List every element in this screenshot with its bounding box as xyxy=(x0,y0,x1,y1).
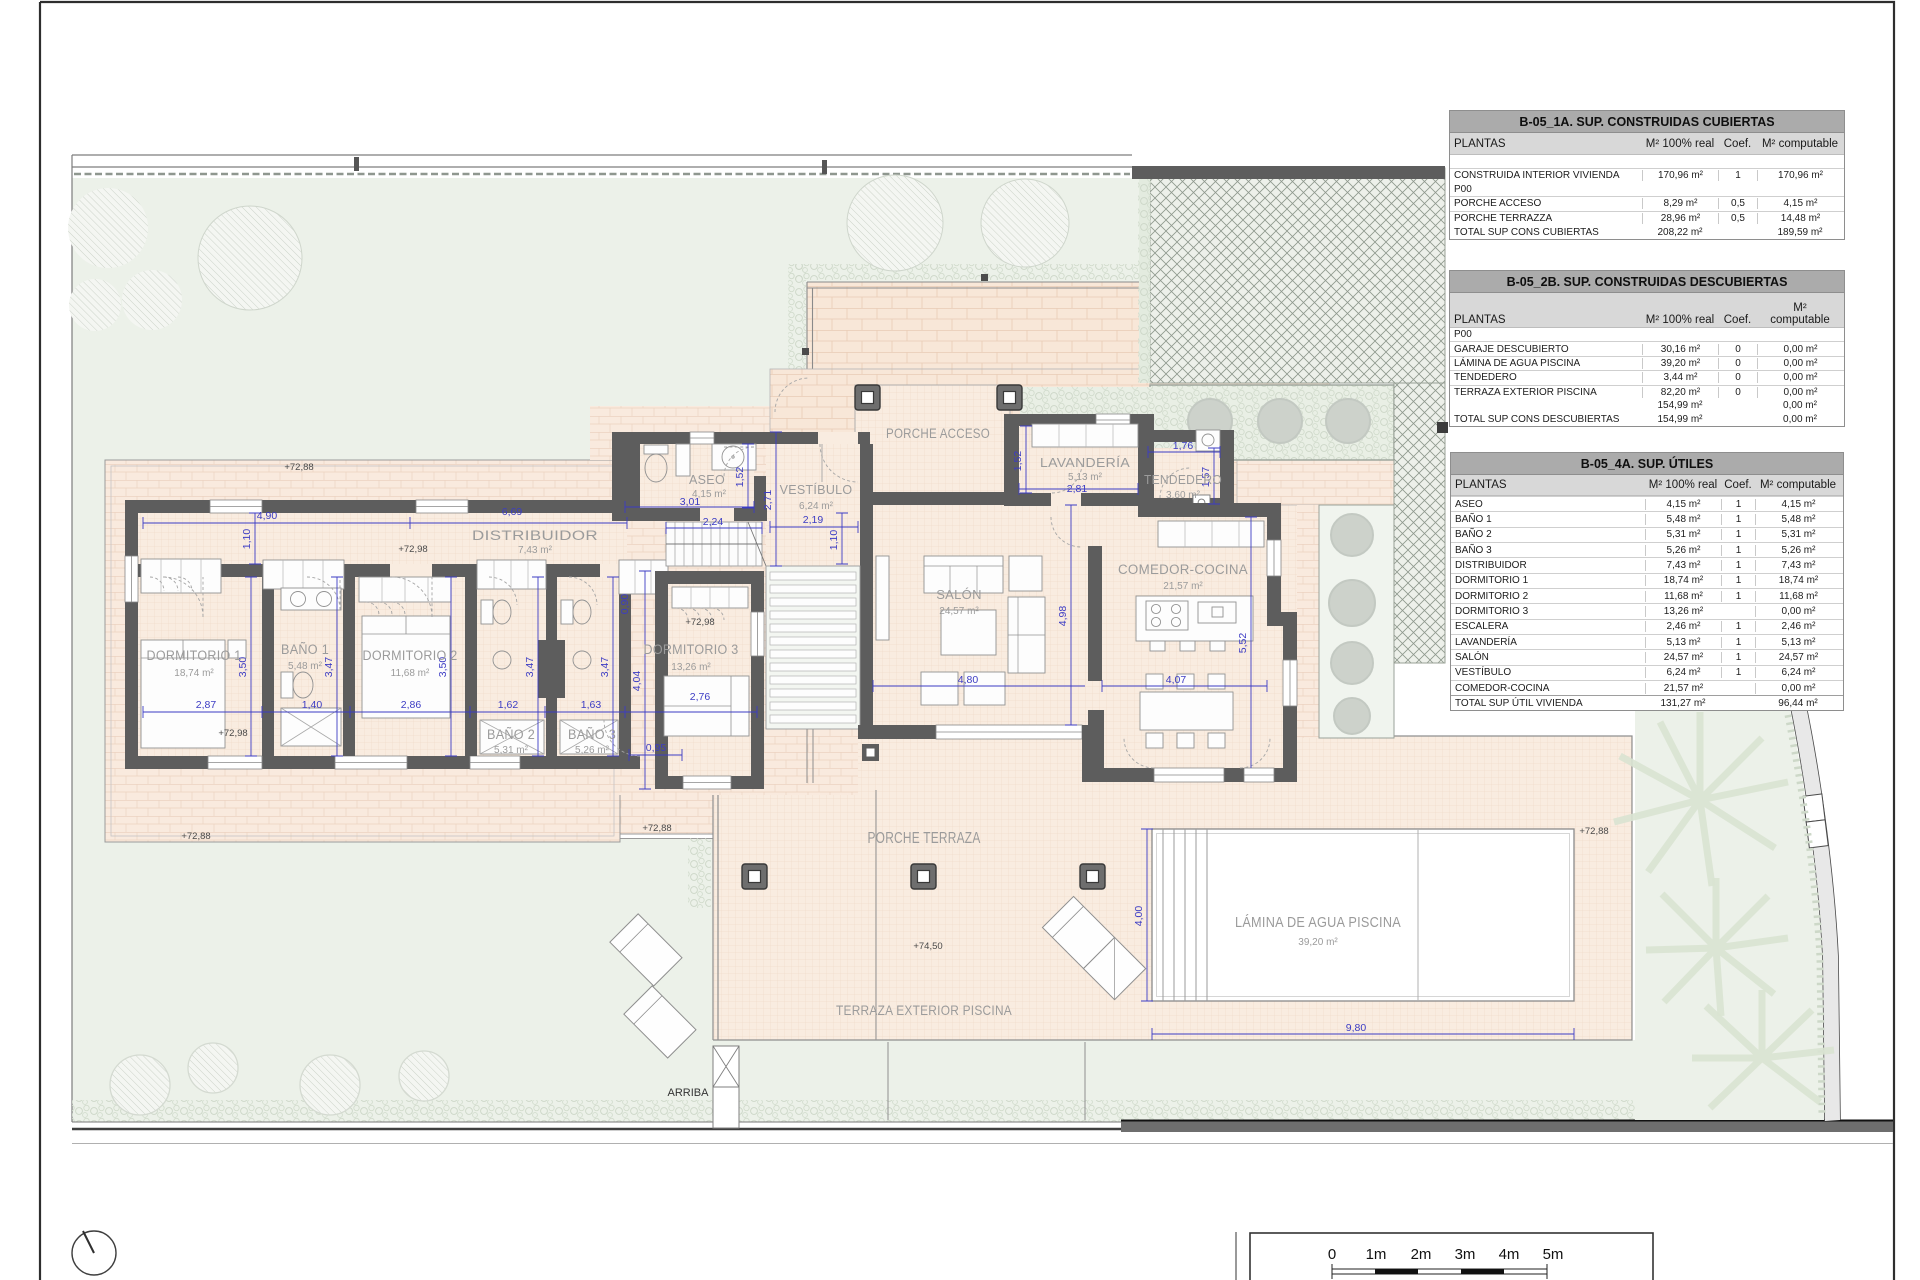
svg-text:6,69: 6,69 xyxy=(502,506,523,518)
svg-text:39,20 m²: 39,20 m² xyxy=(1298,937,1338,948)
svg-text:4m: 4m xyxy=(1499,1246,1520,1263)
svg-text:2,81: 2,81 xyxy=(1067,483,1088,495)
svg-text:BAÑO 1: BAÑO 1 xyxy=(281,642,329,657)
svg-text:6,24 m²: 6,24 m² xyxy=(799,501,834,512)
svg-text:+72,88: +72,88 xyxy=(1579,826,1608,837)
svg-text:LÁMINA DE AGUA PISCINA: LÁMINA DE AGUA PISCINA xyxy=(1235,914,1401,931)
svg-text:2,71: 2,71 xyxy=(762,490,774,511)
svg-text:+72,88: +72,88 xyxy=(642,823,671,834)
svg-text:1,40: 1,40 xyxy=(302,699,323,711)
svg-text:3,60 m²: 3,60 m² xyxy=(1166,490,1201,501)
svg-text:1m: 1m xyxy=(1366,1246,1387,1263)
svg-text:2,19: 2,19 xyxy=(803,514,824,526)
svg-text:4,90: 4,90 xyxy=(257,510,278,522)
svg-text:2,76: 2,76 xyxy=(690,691,711,703)
svg-text:2,86: 2,86 xyxy=(401,699,422,711)
svg-text:18,74 m²: 18,74 m² xyxy=(174,668,214,679)
svg-text:2m: 2m xyxy=(1411,1246,1432,1263)
svg-text:1,62: 1,62 xyxy=(498,699,519,711)
svg-text:+72,88: +72,88 xyxy=(284,462,313,473)
svg-text:TENDEDERO: TENDEDERO xyxy=(1144,473,1222,487)
svg-text:9,80: 9,80 xyxy=(1346,1022,1367,1034)
svg-text:+72,98: +72,98 xyxy=(685,617,714,628)
svg-text:1,10: 1,10 xyxy=(241,529,253,550)
svg-text:COMEDOR-COCINA: COMEDOR-COCINA xyxy=(1118,562,1248,577)
svg-text:5,31 m²: 5,31 m² xyxy=(494,745,529,756)
svg-text:13,26 m²: 13,26 m² xyxy=(671,662,711,673)
svg-text:4,07: 4,07 xyxy=(1166,674,1187,686)
svg-text:7,43 m²: 7,43 m² xyxy=(518,545,553,556)
svg-text:LAVANDERÍA: LAVANDERÍA xyxy=(1040,455,1130,470)
svg-text:DORMITORIO 3: DORMITORIO 3 xyxy=(644,642,739,657)
svg-text:DORMITORIO 2: DORMITORIO 2 xyxy=(363,648,458,663)
svg-text:0: 0 xyxy=(1328,1246,1336,1263)
svg-text:3,47: 3,47 xyxy=(524,657,536,678)
svg-text:ARRIBA: ARRIBA xyxy=(668,1087,710,1099)
svg-text:+72,88: +72,88 xyxy=(181,831,210,842)
svg-text:5,26 m²: 5,26 m² xyxy=(575,745,610,756)
svg-text:+72,98: +72,98 xyxy=(398,544,427,555)
svg-text:4,00: 4,00 xyxy=(1133,906,1145,927)
svg-text:ASEO: ASEO xyxy=(689,473,725,487)
svg-text:4,15 m²: 4,15 m² xyxy=(692,489,727,500)
svg-text:3,47: 3,47 xyxy=(323,657,335,678)
svg-text:11,68 m²: 11,68 m² xyxy=(391,668,430,679)
svg-text:TERRAZA EXTERIOR PISCINA: TERRAZA EXTERIOR PISCINA xyxy=(836,1002,1012,1018)
svg-text:PORCHE ACCESO: PORCHE ACCESO xyxy=(886,425,990,441)
svg-text:5,52: 5,52 xyxy=(1237,633,1249,654)
svg-text:21,57 m²: 21,57 m² xyxy=(1163,581,1203,592)
svg-text:1,52: 1,52 xyxy=(1012,451,1024,472)
svg-text:3m: 3m xyxy=(1455,1246,1476,1263)
svg-text:4,98: 4,98 xyxy=(1057,606,1069,627)
svg-text:DORMITORIO 1: DORMITORIO 1 xyxy=(147,648,242,663)
svg-text:1,10: 1,10 xyxy=(828,530,840,551)
svg-text:BAÑO 2: BAÑO 2 xyxy=(487,727,535,742)
svg-text:1,76: 1,76 xyxy=(1173,440,1194,452)
svg-text:24,57 m²: 24,57 m² xyxy=(939,606,979,617)
svg-text:BAÑO 3: BAÑO 3 xyxy=(568,727,616,742)
svg-text:PORCHE TERRAZA: PORCHE TERRAZA xyxy=(868,830,981,847)
svg-text:0,90: 0,90 xyxy=(619,594,631,615)
svg-text:3,47: 3,47 xyxy=(599,657,611,678)
svg-text:4,80: 4,80 xyxy=(958,674,979,686)
svg-text:5,48 m²: 5,48 m² xyxy=(288,661,323,672)
svg-text:2,24: 2,24 xyxy=(703,516,724,528)
svg-text:+72,98: +72,98 xyxy=(218,728,247,739)
svg-text:SALÓN: SALÓN xyxy=(936,587,982,602)
svg-text:4,04: 4,04 xyxy=(631,671,643,692)
svg-text:1,63: 1,63 xyxy=(581,699,602,711)
svg-text:2,87: 2,87 xyxy=(196,699,217,711)
svg-text:5,13 m²: 5,13 m² xyxy=(1068,472,1103,483)
svg-text:+74,50: +74,50 xyxy=(913,941,942,952)
svg-text:5m: 5m xyxy=(1543,1246,1564,1263)
svg-text:DISTRIBUIDOR: DISTRIBUIDOR xyxy=(472,528,598,543)
svg-text:VESTÍBULO: VESTÍBULO xyxy=(780,482,853,497)
svg-text:0,95: 0,95 xyxy=(646,742,667,754)
svg-text:1,52: 1,52 xyxy=(734,467,746,488)
